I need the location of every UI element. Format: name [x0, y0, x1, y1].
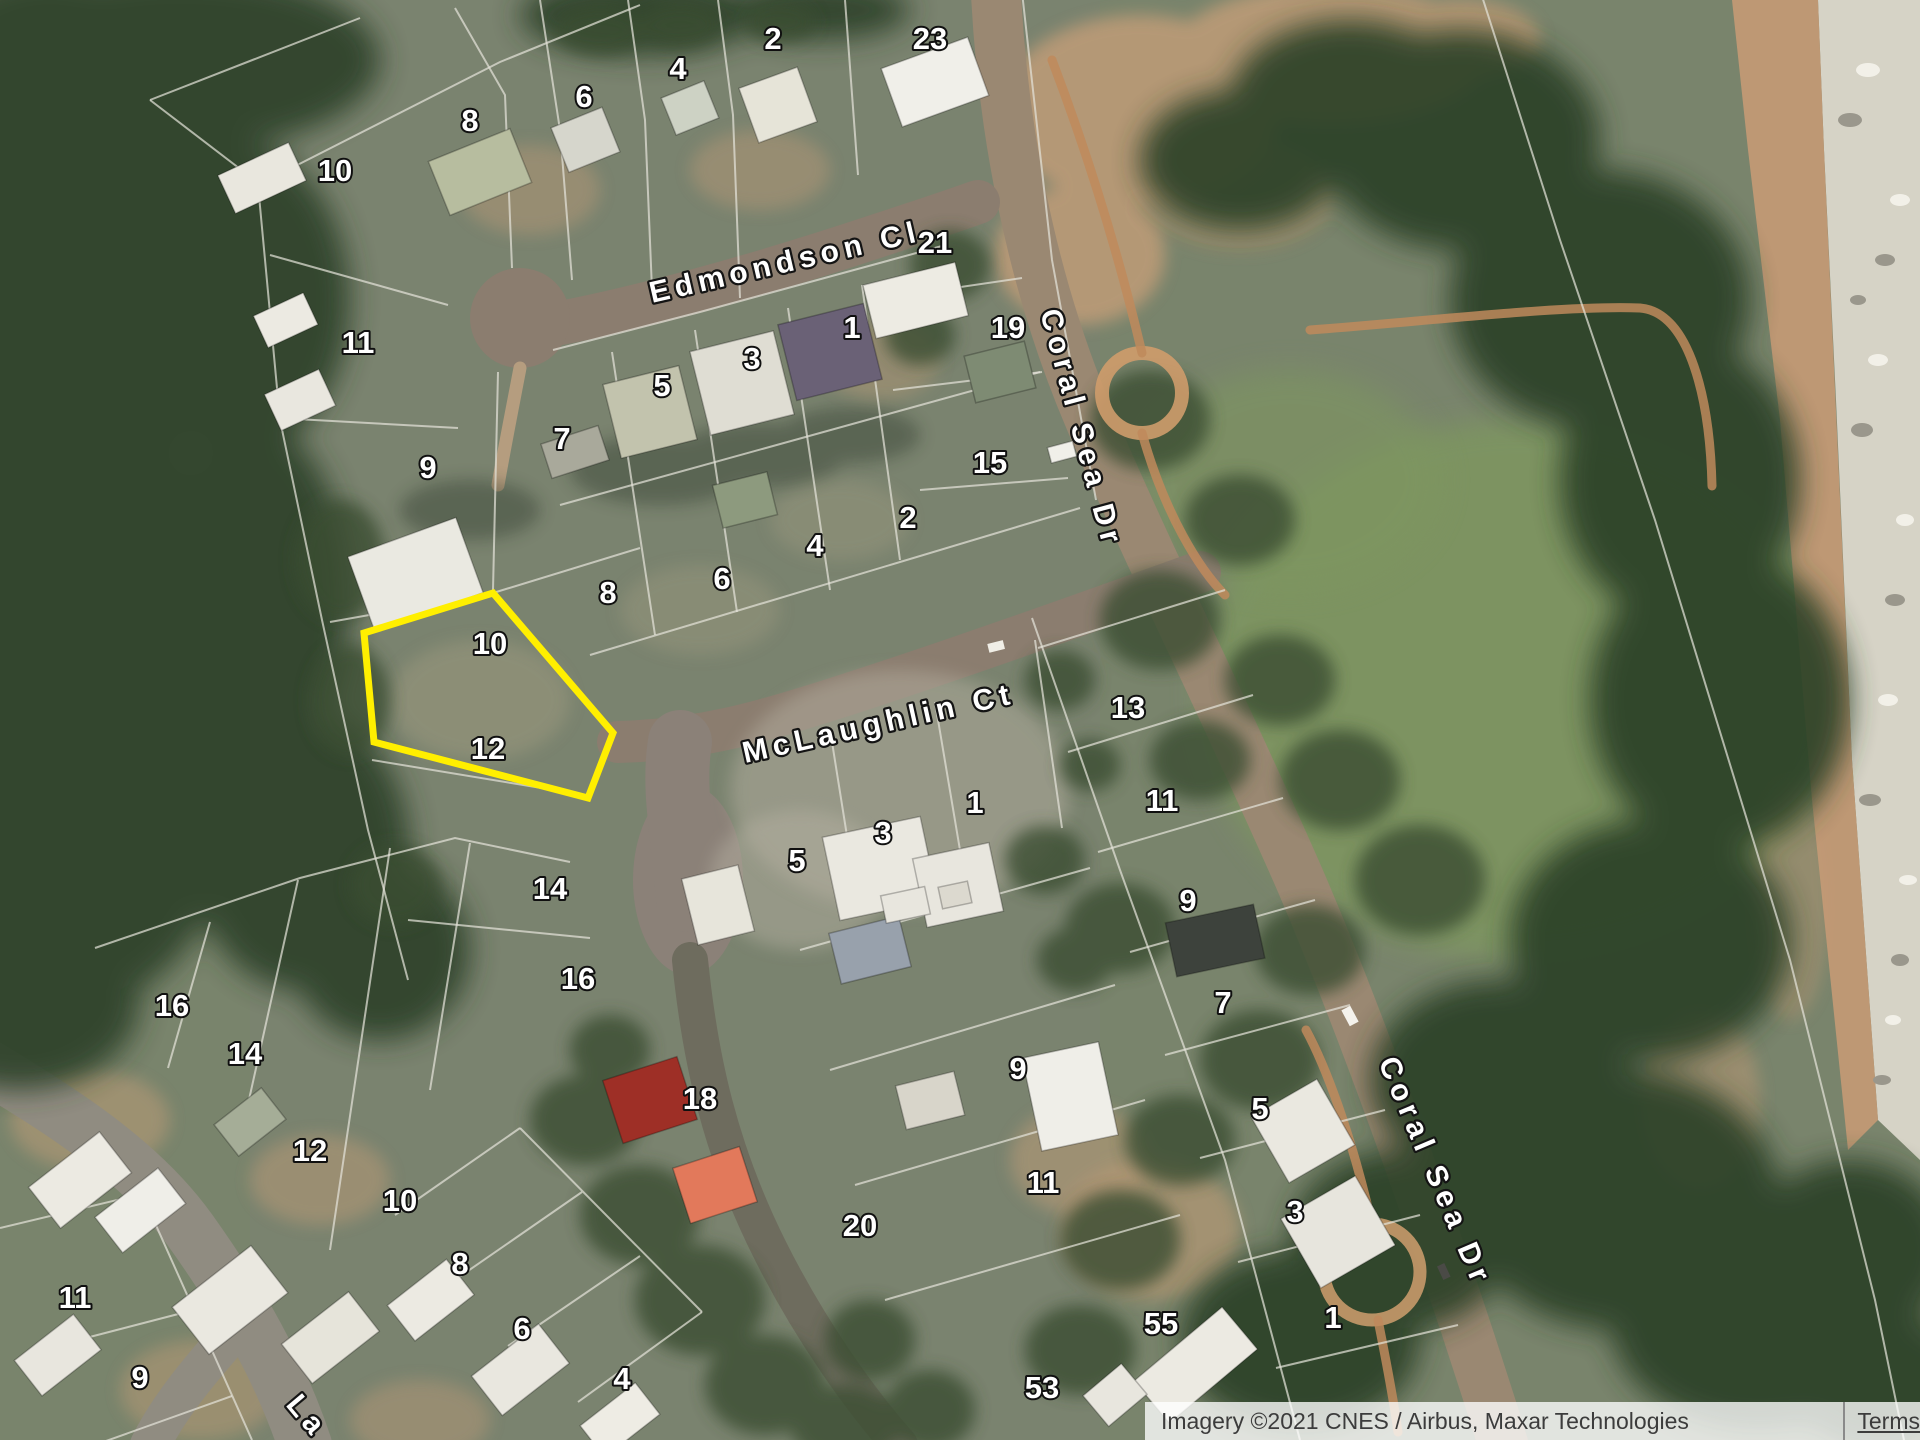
lot-number-label: 11 — [1146, 783, 1179, 818]
lot-number-label: 9 — [1009, 1051, 1026, 1086]
attribution-bar: Imagery ©2021 CNES / Airbus, Maxar Techn… — [1145, 1402, 1920, 1440]
lot-number-label: 5 — [653, 368, 670, 403]
lot-number-label: 14 — [228, 1036, 263, 1071]
lot-number-label: 7 — [1214, 985, 1231, 1020]
lot-number-label: 5 — [788, 843, 805, 878]
lot-number-label: 1 — [966, 785, 983, 820]
lot-number-label: 10 — [383, 1183, 417, 1218]
lot-number-label: 21 — [918, 225, 952, 260]
lot-number-label: 11 — [342, 325, 375, 360]
lot-number-label: 4 — [613, 1361, 631, 1396]
lot-number-label: 9 — [419, 450, 436, 485]
lot-number-label: 4 — [669, 51, 687, 86]
lot-number-label: 53 — [1025, 1370, 1059, 1405]
lot-number-label: 3 — [1286, 1194, 1303, 1229]
lot-number-label: 18 — [683, 1081, 717, 1116]
lot-number-label: 20 — [843, 1208, 877, 1243]
lot-number-label: 9 — [131, 1360, 148, 1395]
lot-number-label: 1 — [843, 310, 860, 345]
lot-number-label: 12 — [293, 1133, 327, 1168]
lot-number-label: 5 — [1251, 1091, 1268, 1126]
lot-number-label: 7 — [553, 421, 570, 456]
lot-number-label: 3 — [874, 815, 891, 850]
lot-number-label: 13 — [1111, 690, 1145, 725]
lot-number-label: 23 — [913, 21, 947, 56]
lot-number-label: 3 — [743, 341, 760, 376]
lot-number-label: 10 — [318, 153, 352, 188]
lot-number-label: 16 — [155, 988, 189, 1023]
lot-number-label: 6 — [713, 561, 730, 596]
lot-number-label: 6 — [513, 1311, 530, 1346]
imagery-attribution-text: Imagery ©2021 CNES / Airbus, Maxar Techn… — [1145, 1408, 1843, 1435]
lot-number-label: 1 — [1324, 1300, 1341, 1335]
lot-number-label: 55 — [1144, 1306, 1178, 1341]
satellite-map-view[interactable]: Edmondson ClMcLaughlin CtCoral Sea DrCor… — [0, 0, 1920, 1440]
satellite-imagery[interactable]: Edmondson ClMcLaughlin CtCoral Sea DrCor… — [0, 0, 1920, 1440]
terms-link[interactable]: Terms — [1845, 1408, 1920, 1435]
lot-number-label: 11 — [59, 1280, 92, 1315]
lot-number-label: 10 — [473, 626, 507, 661]
lot-number-label: 8 — [599, 575, 616, 610]
lot-number-label: 14 — [533, 871, 568, 906]
lot-number-label: 6 — [575, 79, 592, 114]
lot-number-label: 9 — [1179, 883, 1196, 918]
lot-number-label: 19 — [991, 310, 1025, 345]
lot-number-label: 11 — [1027, 1165, 1060, 1200]
edmondson-cul-de-sac — [470, 268, 570, 368]
lot-number-label: 4 — [806, 528, 824, 563]
lot-number-label: 8 — [461, 103, 478, 138]
lot-number-label: 2 — [764, 21, 781, 56]
lot-number-label: 8 — [451, 1246, 468, 1281]
lot-number-label: 16 — [561, 961, 595, 996]
lot-number-label: 12 — [471, 731, 505, 766]
lot-number-label: 2 — [899, 500, 916, 535]
lot-number-label: 15 — [973, 445, 1007, 480]
